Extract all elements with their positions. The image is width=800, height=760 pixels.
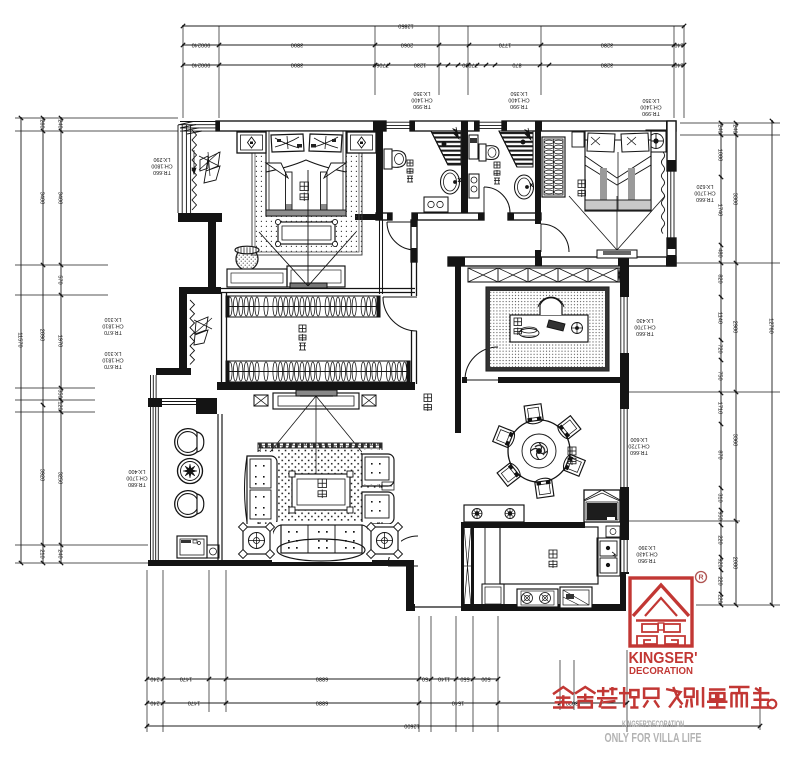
svg-text:2060: 2060 <box>401 41 413 47</box>
svg-text:LX:310: LX:310 <box>104 316 121 322</box>
svg-text:1710: 1710 <box>716 402 722 414</box>
svg-text:1770: 1770 <box>499 41 511 47</box>
svg-text:ONLY FOR VILLA LIFE: ONLY FOR VILLA LIFE <box>605 730 702 745</box>
svg-text:870: 870 <box>716 450 722 459</box>
svg-text:TR:990: TR:990 <box>642 110 660 116</box>
svg-text:210: 210 <box>38 549 44 558</box>
svg-text:1140: 1140 <box>716 312 722 324</box>
svg-text:11570: 11570 <box>16 332 22 347</box>
svg-text:TR:660: TR:660 <box>630 449 648 455</box>
svg-text:220: 220 <box>716 576 722 585</box>
svg-text:120: 120 <box>56 401 62 410</box>
svg-text:3890: 3890 <box>291 41 303 47</box>
svg-text:TR:680: TR:680 <box>128 481 146 487</box>
svg-text:TR:990: TR:990 <box>510 103 528 109</box>
svg-text:TR:670: TR:670 <box>104 363 122 369</box>
svg-text:3280: 3280 <box>601 41 613 47</box>
svg-text:3280: 3280 <box>601 61 613 67</box>
svg-text:KINGSER': KINGSER' <box>629 650 698 667</box>
svg-text:240: 240 <box>674 61 683 67</box>
svg-text:CH:1700: CH:1700 <box>634 323 655 329</box>
svg-text:260: 260 <box>38 119 44 128</box>
svg-text:6880: 6880 <box>316 699 328 705</box>
svg-text:240: 240 <box>731 124 737 133</box>
svg-text:1470: 1470 <box>188 699 200 705</box>
svg-text:TR:660: TR:660 <box>696 196 714 202</box>
svg-text:2980: 2980 <box>731 321 737 333</box>
svg-text:R: R <box>698 575 703 582</box>
svg-text:1230: 1230 <box>414 61 426 67</box>
svg-text:3360: 3360 <box>731 434 737 446</box>
svg-text:3300: 3300 <box>731 193 737 205</box>
svg-text:CH:1810: CH:1810 <box>102 356 123 362</box>
svg-text:CH:1720: CH:1720 <box>628 442 649 448</box>
svg-text:350: 350 <box>56 389 62 398</box>
svg-text:240: 240 <box>716 124 722 133</box>
svg-text:LX:400: LX:400 <box>128 468 145 474</box>
svg-text:LX:290: LX:290 <box>153 156 170 162</box>
svg-text:3400: 3400 <box>38 192 44 204</box>
svg-text:920: 920 <box>716 558 722 567</box>
svg-text:DECORATION: DECORATION <box>629 666 693 677</box>
svg-text:12850: 12850 <box>398 22 414 28</box>
svg-text:CH:1400: CH:1400 <box>411 96 432 102</box>
svg-text:TR:670: TR:670 <box>104 329 122 335</box>
svg-text:CH:1800: CH:1800 <box>151 162 172 168</box>
svg-text:550: 550 <box>460 675 469 681</box>
svg-text:LX:310: LX:310 <box>104 350 121 356</box>
svg-text:1470: 1470 <box>180 675 192 681</box>
svg-text:TR:660: TR:660 <box>153 169 171 175</box>
svg-text:77030: 77030 <box>462 61 478 67</box>
svg-text:3400: 3400 <box>56 192 62 204</box>
svg-text:240: 240 <box>150 675 159 681</box>
svg-text:820: 820 <box>716 274 722 283</box>
svg-text:6880: 6880 <box>316 675 328 681</box>
svg-text:1540: 1540 <box>452 699 464 705</box>
svg-text:750: 750 <box>716 371 722 380</box>
svg-text:LX:350: LX:350 <box>413 90 430 96</box>
svg-text:570: 570 <box>56 275 62 284</box>
svg-text:77060: 77060 <box>373 61 389 67</box>
svg-text:500: 500 <box>481 675 490 681</box>
svg-text:310: 310 <box>716 493 722 502</box>
svg-text:TR:950: TR:950 <box>638 557 656 563</box>
svg-text:950: 950 <box>716 511 722 520</box>
svg-text:2080: 2080 <box>731 557 737 569</box>
svg-text:240: 240 <box>150 699 159 705</box>
svg-text:LX:620: LX:620 <box>696 183 713 189</box>
svg-text:LX:600: LX:600 <box>630 436 647 442</box>
svg-text:LX:390: LX:390 <box>638 544 655 550</box>
svg-text:900240: 900240 <box>192 61 211 67</box>
svg-text:CH:1400: CH:1400 <box>640 103 661 109</box>
svg-text:220: 220 <box>716 535 722 544</box>
svg-text:900240: 900240 <box>192 41 211 47</box>
svg-text:2890: 2890 <box>38 329 44 341</box>
svg-text:CH:1700: CH:1700 <box>126 474 147 480</box>
svg-text:1080: 1080 <box>716 149 722 161</box>
svg-text:1970: 1970 <box>56 335 62 347</box>
svg-text:1740: 1740 <box>716 204 722 216</box>
svg-text:3920: 3920 <box>38 469 44 481</box>
svg-text:CH:1700: CH:1700 <box>694 189 715 195</box>
svg-text:720: 720 <box>716 344 722 353</box>
svg-text:CH:1430: CH:1430 <box>636 550 657 556</box>
svg-text:870: 870 <box>512 61 521 67</box>
svg-text:TR:990: TR:990 <box>413 103 431 109</box>
svg-text:CH:1810: CH:1810 <box>102 322 123 328</box>
svg-text:480: 480 <box>716 248 722 257</box>
svg-text:240: 240 <box>674 41 683 47</box>
svg-text:LX:350: LX:350 <box>642 97 659 103</box>
svg-text:240: 240 <box>56 119 62 128</box>
svg-text:12600: 12600 <box>404 722 420 728</box>
svg-text:3250: 3250 <box>56 472 62 484</box>
svg-text:50: 50 <box>422 675 428 681</box>
svg-text:12760: 12760 <box>767 318 773 334</box>
svg-text:KINGSER'DECORATION: KINGSER'DECORATION <box>622 719 684 729</box>
svg-text:3890: 3890 <box>291 61 303 67</box>
svg-text:TR:660: TR:660 <box>636 330 654 336</box>
svg-text:LX:350: LX:350 <box>510 90 527 96</box>
svg-text:LX:430: LX:430 <box>636 317 653 323</box>
svg-text:1140: 1140 <box>438 675 450 681</box>
svg-text:240: 240 <box>56 549 62 558</box>
svg-text:CH:1400: CH:1400 <box>508 96 529 102</box>
svg-text:220: 220 <box>716 594 722 603</box>
